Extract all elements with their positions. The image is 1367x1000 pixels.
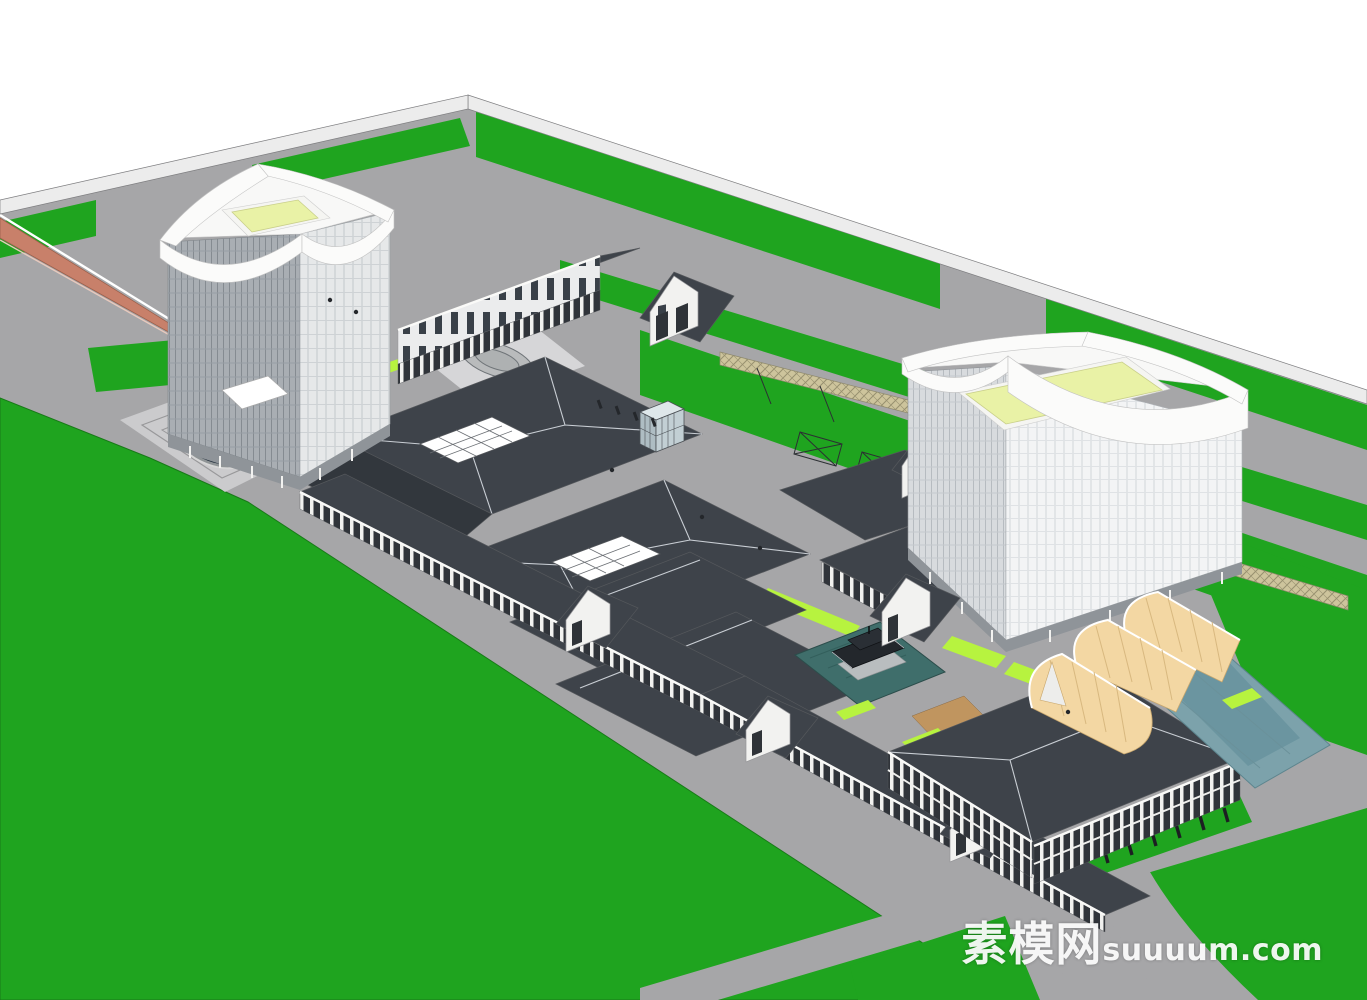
left-tower (160, 164, 394, 490)
watermark: 素模网suuuum.com (961, 908, 1323, 974)
site-render (0, 0, 1367, 1000)
render-viewport: 素模网suuuum.com (0, 0, 1367, 1000)
watermark-site-name: 素模网 (961, 908, 1102, 974)
watermark-domain: suuuum.com (1102, 933, 1323, 968)
